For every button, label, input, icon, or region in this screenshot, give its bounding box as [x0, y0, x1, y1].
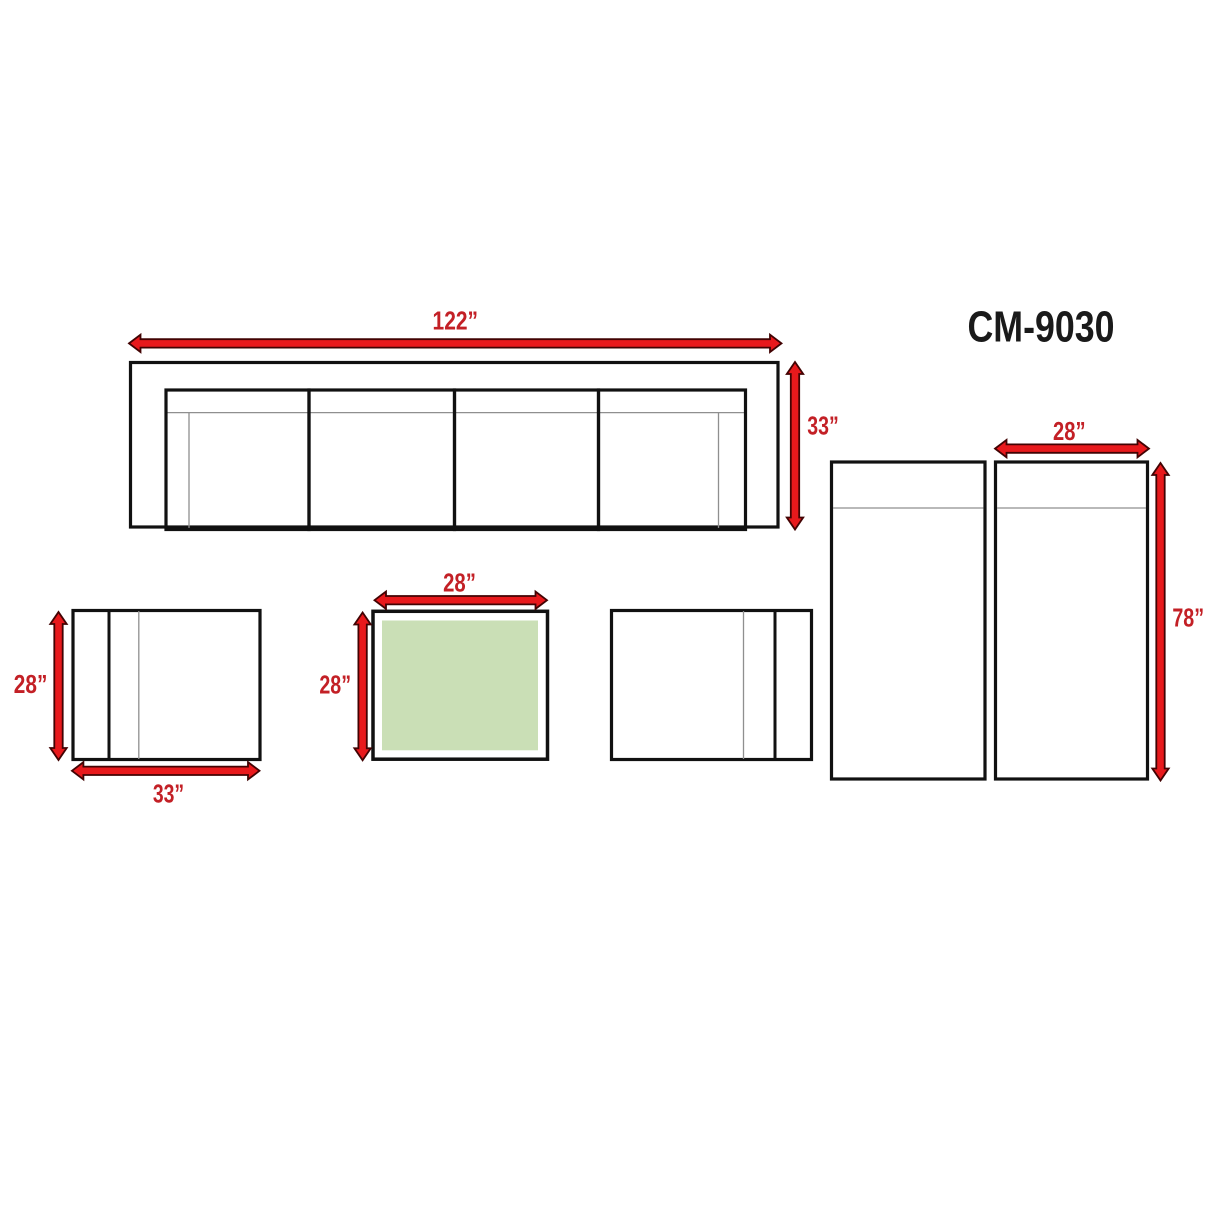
- svg-text:28”: 28”: [14, 671, 48, 699]
- svg-text:28”: 28”: [1053, 418, 1086, 446]
- svg-text:78”: 78”: [1172, 605, 1204, 633]
- svg-text:122”: 122”: [433, 308, 479, 336]
- svg-text:CM-9030: CM-9030: [968, 304, 1115, 352]
- svg-text:28”: 28”: [319, 672, 351, 700]
- svg-text:33”: 33”: [153, 780, 184, 808]
- svg-text:28”: 28”: [443, 570, 476, 598]
- svg-text:33”: 33”: [807, 412, 839, 440]
